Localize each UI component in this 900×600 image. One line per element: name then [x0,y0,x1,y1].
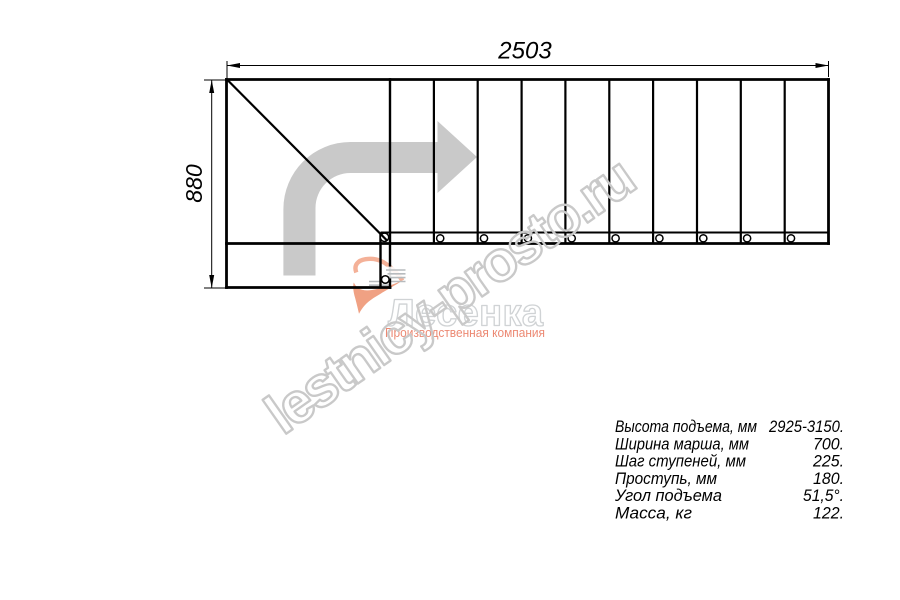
svg-text:880: 880 [181,164,207,203]
svg-text:180.: 180. [813,469,844,488]
svg-text:2503: 2503 [497,38,552,65]
svg-text:700.: 700. [813,434,844,453]
svg-text:Шаг ступеней, мм: Шаг ступеней, мм [615,452,746,471]
svg-text:225.: 225. [812,452,844,471]
svg-text:2925-3150.: 2925-3150. [768,417,844,436]
svg-text:122.: 122. [813,504,844,523]
svg-text:Угол подъема: Угол подъема [614,486,722,505]
svg-text:Высота подъема, мм: Высота подъема, мм [615,417,757,436]
svg-text:51,5°.: 51,5°. [803,486,844,505]
svg-text:Проступь, мм: Проступь, мм [615,469,717,488]
svg-text:Масса, кг: Масса, кг [615,504,692,523]
svg-text:Ширина марша, мм: Ширина марша, мм [615,434,749,453]
